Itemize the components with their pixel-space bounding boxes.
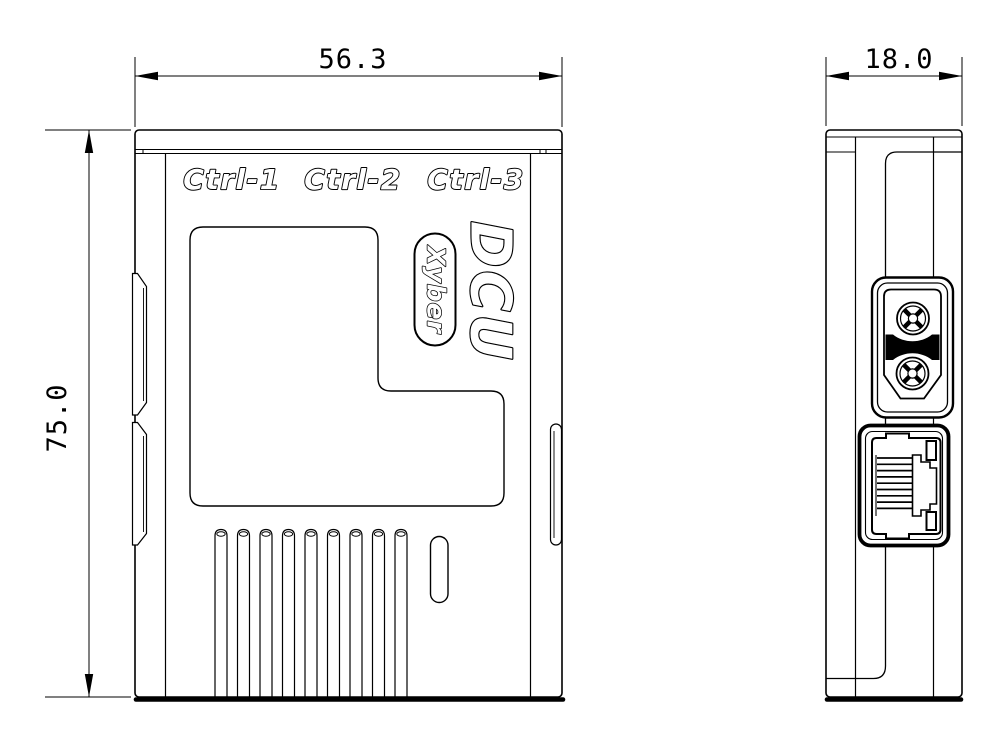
technical-drawing: 56.3 75.0 18.0 Ctrl-1 Ctrl-2 Ctrl-3 <box>0 0 1000 737</box>
arrowhead-left <box>135 72 158 80</box>
brand-xyber: Xyber <box>422 244 451 334</box>
enclosure-outline <box>135 130 562 697</box>
arrowhead-right <box>939 72 962 80</box>
dimension-front-width: 56.3 <box>135 44 562 127</box>
brand-badge: Xyber <box>415 234 456 346</box>
arrowhead-right <box>539 72 562 80</box>
terminal-center <box>908 314 917 323</box>
logo-dcu: DCU <box>458 221 523 363</box>
dimension-side-width: 18.0 <box>826 44 962 126</box>
port-label-ctrl-2: Ctrl-2 <box>304 163 401 196</box>
dimension-front-height: 75.0 <box>42 130 131 697</box>
terminal-center <box>908 369 917 378</box>
arrowhead-left <box>826 72 849 80</box>
dimension-value: 75.0 <box>42 383 73 452</box>
port-label-ctrl-1: Ctrl-1 <box>183 163 280 196</box>
arrowhead-bottom <box>85 674 93 697</box>
side-view <box>826 130 962 700</box>
front-view: Ctrl-1 Ctrl-2 Ctrl-3 DCU Xyber <box>133 130 564 700</box>
right-tab <box>551 424 562 545</box>
right-edge-tab <box>551 424 562 545</box>
left-tab <box>133 423 147 546</box>
dimension-value: 56.3 <box>318 44 387 75</box>
xt30-power-connector <box>872 278 953 418</box>
dimension-value: 18.0 <box>864 44 933 75</box>
technical-drawing-page: 56.3 75.0 18.0 Ctrl-1 Ctrl-2 Ctrl-3 <box>0 0 1000 737</box>
port-label-ctrl-3: Ctrl-3 <box>427 163 524 196</box>
rj45-ethernet-port <box>860 426 949 546</box>
left-tab <box>133 274 147 416</box>
arrowhead-top <box>85 130 93 153</box>
